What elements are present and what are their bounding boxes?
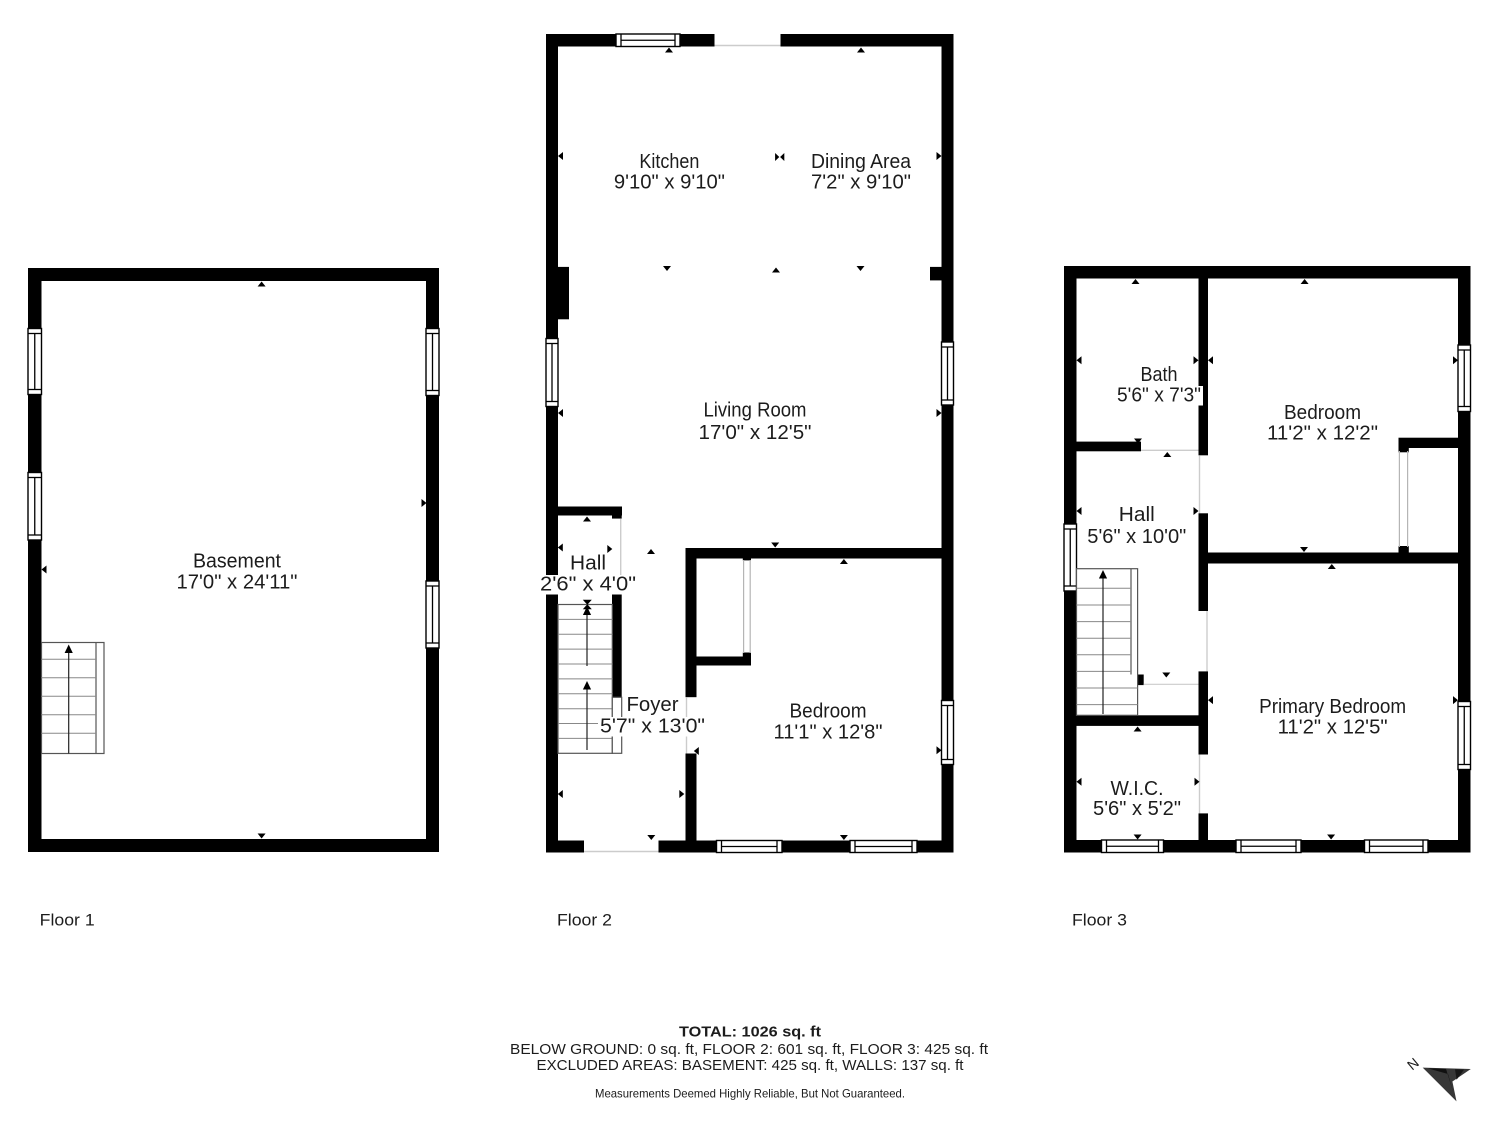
svg-text:Bedroom: Bedroom — [1284, 402, 1361, 424]
svg-text:17'0" x 12'5": 17'0" x 12'5" — [699, 422, 812, 444]
svg-text:Bath: Bath — [1141, 364, 1178, 386]
svg-text:TOTAL: 1026 sq. ft: TOTAL: 1026 sq. ft — [679, 1023, 821, 1040]
svg-text:11'2" x 12'2": 11'2" x 12'2" — [1267, 423, 1378, 445]
svg-text:17'0" x 24'11": 17'0" x 24'11" — [177, 571, 298, 593]
svg-text:Floor 2: Floor 2 — [557, 911, 612, 930]
svg-text:Foyer: Foyer — [627, 694, 679, 716]
svg-text:11'1" x 12'8": 11'1" x 12'8" — [774, 722, 883, 744]
svg-text:Floor 1: Floor 1 — [40, 911, 95, 930]
svg-text:EXCLUDED AREAS: BASEMENT: 425: EXCLUDED AREAS: BASEMENT: 425 sq. ft, WA… — [537, 1057, 965, 1074]
svg-text:BELOW GROUND: 0 sq. ft, FLOOR: BELOW GROUND: 0 sq. ft, FLOOR 2: 601 sq.… — [510, 1041, 989, 1058]
svg-text:Measurements Deemed Highly Rel: Measurements Deemed Highly Reliable, But… — [595, 1086, 905, 1100]
svg-text:11'2" x 12'5": 11'2" x 12'5" — [1278, 717, 1388, 739]
svg-text:2'6" x 4'0": 2'6" x 4'0" — [540, 574, 636, 596]
svg-text:5'6" x 7'3": 5'6" x 7'3" — [1117, 385, 1201, 407]
svg-text:5'7" x 13'0": 5'7" x 13'0" — [600, 716, 705, 738]
svg-text:5'6" x 5'2": 5'6" x 5'2" — [1093, 798, 1181, 820]
svg-text:7'2" x 9'10": 7'2" x 9'10" — [811, 172, 911, 194]
svg-text:Basement: Basement — [193, 551, 281, 573]
svg-text:Dining Area: Dining Area — [811, 151, 912, 173]
svg-text:Bedroom: Bedroom — [790, 701, 867, 723]
svg-text:W.I.C.: W.I.C. — [1111, 778, 1164, 800]
svg-text:Kitchen: Kitchen — [639, 151, 699, 173]
svg-text:5'6" x 10'0": 5'6" x 10'0" — [1087, 526, 1186, 548]
svg-text:Floor 3: Floor 3 — [1072, 911, 1127, 930]
svg-text:Hall: Hall — [570, 553, 606, 575]
svg-text:Hall: Hall — [1119, 504, 1155, 526]
svg-text:Primary Bedroom: Primary Bedroom — [1259, 696, 1406, 718]
svg-text:9'10" x 9'10": 9'10" x 9'10" — [614, 172, 725, 194]
svg-text:Living Room: Living Room — [704, 400, 807, 422]
